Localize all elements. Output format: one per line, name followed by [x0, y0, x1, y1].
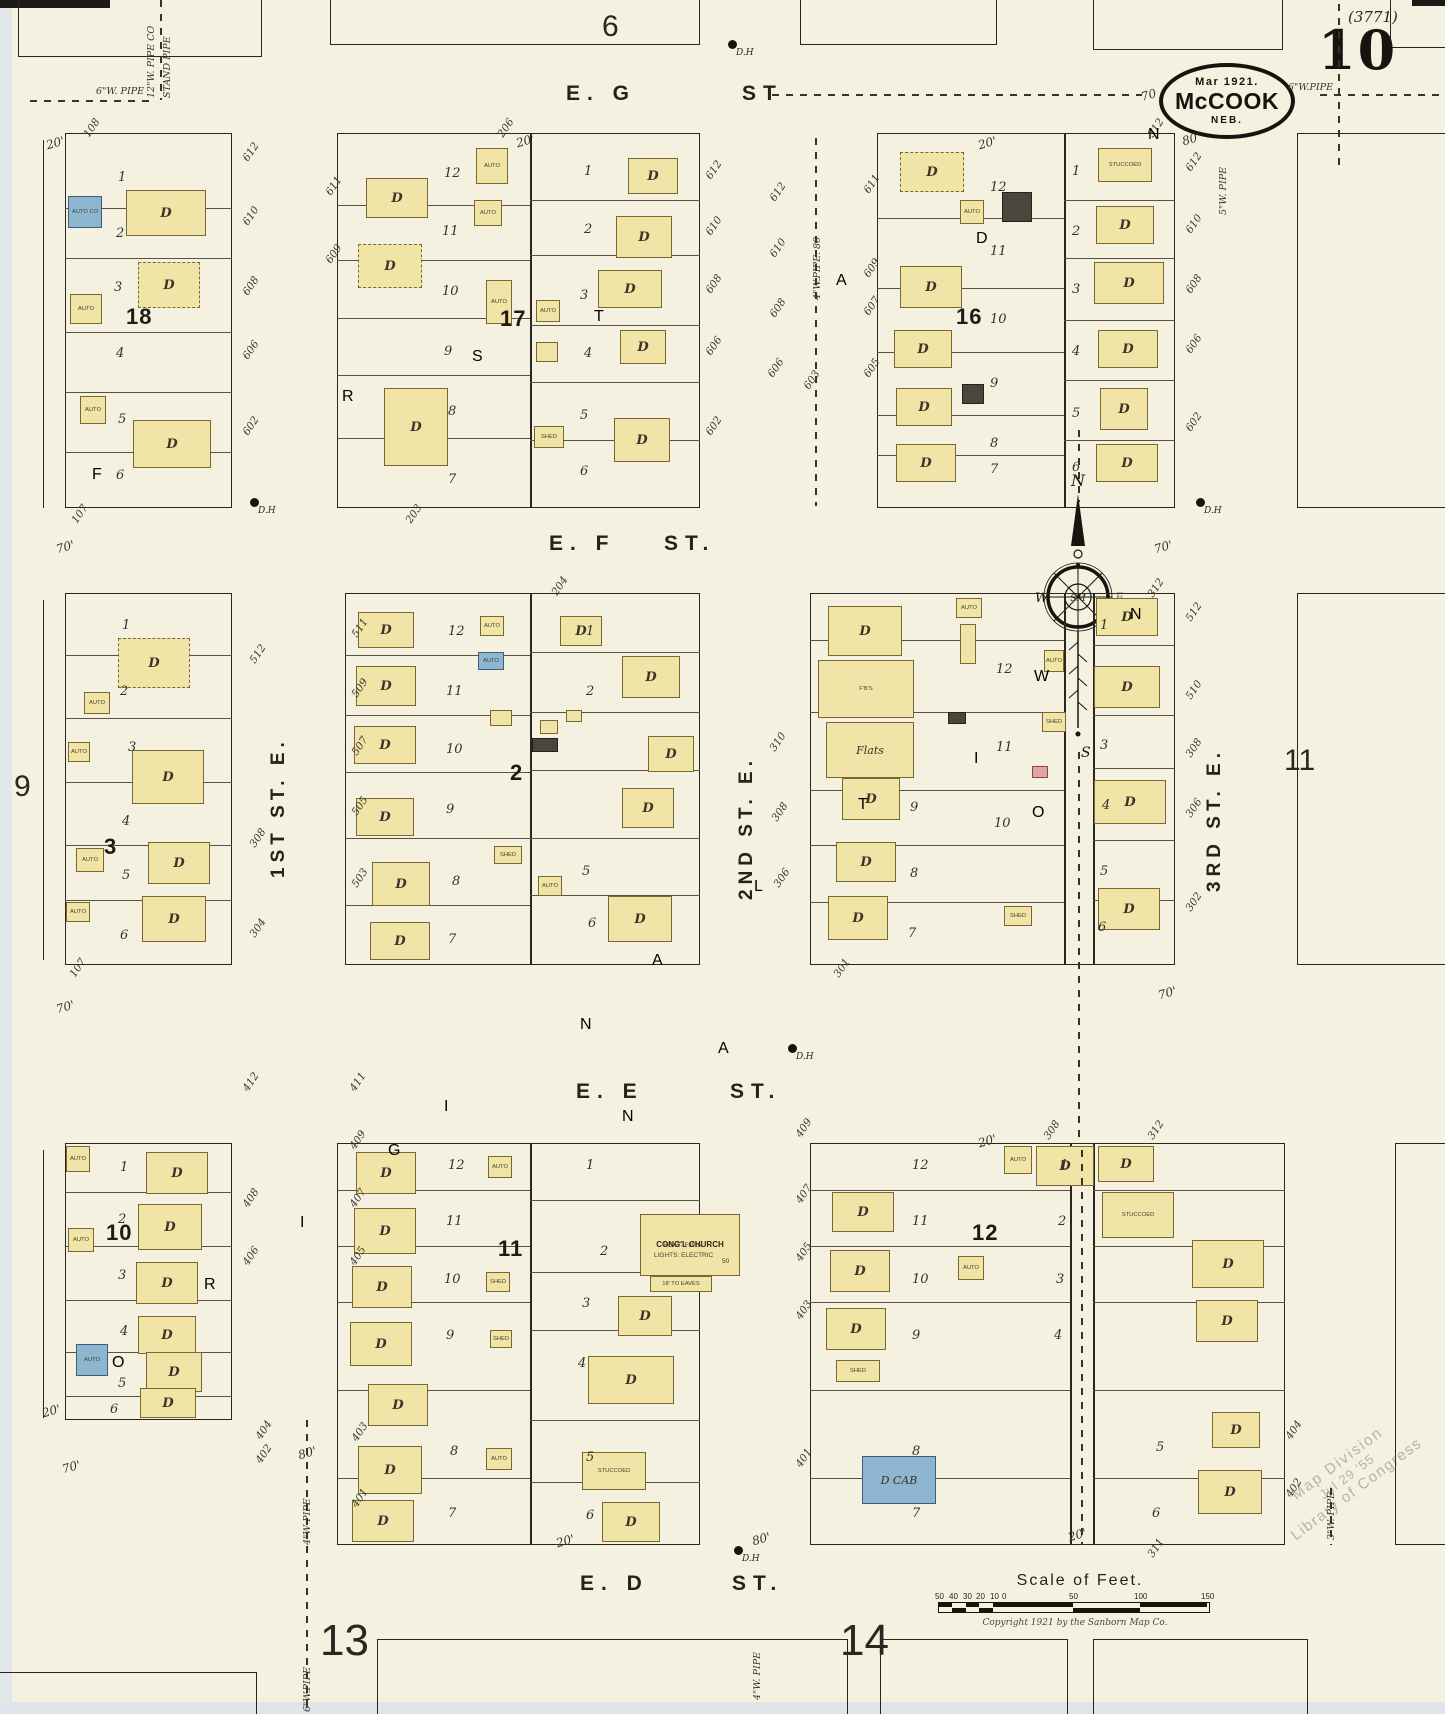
lot-number: 12: [448, 1158, 465, 1173]
plat-letter: A: [836, 272, 847, 290]
building-unlabeled: [1002, 192, 1032, 222]
dimension-label: 70: [1139, 86, 1158, 104]
block-inner-line: [1093, 1143, 1095, 1545]
lot-number: 8: [910, 866, 918, 881]
building-label: D: [625, 1515, 636, 1530]
lot-line: [65, 718, 232, 719]
building-d: D: [1212, 1412, 1260, 1448]
building-unlabeled: [962, 384, 984, 404]
building-d: D: [616, 216, 672, 258]
building-label: D: [384, 259, 395, 274]
building-label: D: [636, 433, 647, 448]
lot-number: 12: [990, 180, 1007, 195]
building-label: SHED: [500, 852, 516, 858]
building-label: D: [642, 801, 653, 816]
building-auto: AUTO: [956, 598, 982, 618]
adjacent-sheet-number: 13: [320, 1616, 369, 1666]
partial-block: [1390, 0, 1445, 48]
lot-number: 7: [990, 462, 998, 477]
building-d: D: [118, 638, 190, 688]
scale-tick: 100: [1134, 1592, 1147, 1601]
building-18-to-eaves: 18' TO EAVES: [650, 1276, 712, 1292]
water-pipe-line: [815, 138, 817, 506]
lot-line: [1093, 645, 1175, 646]
building-d: D: [900, 152, 964, 192]
lot-number: 3: [114, 280, 122, 295]
street-label: E. E: [576, 1080, 644, 1104]
building-label: D: [850, 1322, 861, 1337]
building-label: AUTO: [961, 605, 977, 611]
building-d: D: [358, 244, 422, 288]
house-number: 302: [1183, 890, 1204, 913]
building-shed: SHED: [494, 846, 522, 864]
house-number: 610: [703, 214, 724, 237]
lot-number: 7: [448, 932, 456, 947]
partial-block: [1297, 133, 1445, 508]
lot-line: [810, 1190, 1070, 1191]
building-auto: AUTO: [76, 1344, 108, 1376]
building-auto: AUTO: [68, 742, 90, 762]
lot-number: 2: [120, 684, 128, 699]
building-d: D: [352, 1266, 412, 1308]
block-number: 12: [972, 1220, 998, 1246]
building-d-cab: D CAB: [862, 1456, 936, 1504]
lot-number: 9: [446, 1328, 454, 1343]
building-d: D: [608, 896, 672, 942]
block-inner-line: [530, 593, 532, 965]
building-label: STUCCOED: [1109, 162, 1142, 168]
building-d: D: [1098, 888, 1160, 930]
building-unlabeled: [960, 624, 976, 664]
scale-cell: [1073, 1608, 1140, 1612]
building-stuccoed: STUCCOED: [1102, 1192, 1174, 1238]
plat-letter: I: [974, 750, 978, 768]
building-label: D: [1224, 1485, 1235, 1500]
building-d: D: [1094, 262, 1164, 304]
building-shed: SHED: [1004, 906, 1032, 926]
building-d: D: [384, 388, 448, 466]
building-label: Flats: [856, 744, 884, 757]
building-d: D: [356, 1152, 416, 1194]
lot-line: [530, 382, 700, 383]
lot-number: 6: [116, 468, 124, 483]
block-number: 16: [956, 304, 982, 330]
building-label: AUTO: [84, 1357, 100, 1363]
lot-number: 2: [1058, 1214, 1066, 1229]
plat-letter: N: [580, 1016, 592, 1034]
lot-line: [337, 1390, 530, 1391]
building-label: D: [168, 1365, 179, 1380]
plat-letter: D: [976, 230, 988, 248]
building-label: D: [1123, 276, 1134, 291]
building-d: D: [1100, 388, 1148, 430]
lot-line: [530, 325, 700, 326]
building-label: AUTO: [964, 209, 980, 215]
building-d: D: [560, 616, 602, 646]
building-label: D: [634, 912, 645, 927]
lot-number: 10: [990, 312, 1007, 327]
building-d: D: [1096, 206, 1154, 244]
lot-line: [1093, 840, 1175, 841]
lot-number: 11: [446, 684, 463, 699]
building-label: D: [1121, 680, 1132, 695]
building-label: D: [638, 230, 649, 245]
scale-cell: [993, 1608, 1006, 1612]
plat-letter: L: [754, 878, 763, 896]
building-auto: AUTO: [68, 1228, 94, 1252]
building-auto: AUTO: [960, 200, 984, 224]
adjacent-sheet-number: 6: [602, 10, 619, 44]
building-auto: AUTO: [478, 652, 504, 670]
lot-line: [1064, 258, 1175, 259]
building-label: D: [1124, 795, 1135, 810]
lot-number: 5: [586, 1450, 594, 1465]
pipe-label: 4"W.PIPE. 80: [812, 237, 823, 300]
building-unlabeled: [536, 342, 558, 362]
building-label: D CAB: [881, 1474, 918, 1487]
lot-number: 8: [452, 874, 460, 889]
lot-number: 9: [990, 376, 998, 391]
logo-date: Mar 1921.: [1195, 76, 1259, 88]
building-d: D: [828, 896, 888, 940]
building-label: STUCCOED: [1122, 1212, 1155, 1218]
lot-number: 9: [910, 800, 918, 815]
dimension-label: 80': [750, 1530, 772, 1549]
hydrant-label: D.H: [1204, 506, 1222, 516]
building-label: F'B'S: [859, 686, 873, 692]
block-inner-line: [530, 1143, 532, 1545]
house-number: 409: [793, 1116, 814, 1139]
building-d: D: [900, 266, 962, 308]
building-shed: SHED: [1042, 712, 1066, 732]
lot-number: 1: [1060, 1158, 1068, 1173]
pipe-label: 5"W. PIPE: [1218, 167, 1229, 215]
pipe-label: 4"W. PIPE: [752, 1652, 763, 1700]
building-auto: AUTO: [480, 616, 504, 636]
plat-letter: F: [92, 466, 102, 484]
block-number: 17: [500, 306, 526, 332]
copyright-line: Copyright 1921 by the Sanborn Map Co.: [955, 1618, 1195, 1628]
lot-number: 11: [442, 224, 459, 239]
lot-line: [530, 712, 700, 713]
lot-number: 1: [1072, 164, 1080, 179]
building-d: D: [142, 896, 206, 942]
building-label: SHED: [1010, 913, 1026, 919]
building-label: D: [410, 420, 421, 435]
lot-number: 12: [996, 662, 1013, 677]
building-label: AUTO: [491, 299, 507, 305]
scale-tick: 0: [1002, 1592, 1006, 1601]
lot-number: 12: [444, 166, 461, 181]
building-label: D: [395, 877, 406, 892]
partial-block: [0, 1150, 44, 1418]
building-d: D: [622, 788, 674, 828]
building-auto: AUTO: [76, 848, 104, 872]
pipe-label: STAND PIPE: [162, 36, 173, 98]
house-number: 610: [240, 204, 261, 227]
building-label: AUTO: [78, 306, 94, 312]
scale-cell: [1006, 1603, 1073, 1607]
building-d: D: [132, 750, 204, 804]
building-d: D: [350, 1322, 412, 1366]
block-number: 2: [510, 760, 523, 786]
house-number: 612: [240, 140, 261, 163]
lot-line: [530, 1330, 700, 1331]
plat-letter: A: [718, 1040, 729, 1058]
lot-line: [1064, 380, 1175, 381]
building-auto: AUTO: [84, 692, 110, 714]
lot-number: 1: [584, 164, 592, 179]
building-unlabeled: [532, 738, 558, 752]
building-label: D: [379, 810, 390, 825]
building-stuccoed: STUCCOED: [1098, 148, 1152, 182]
lot-number: 11: [446, 1214, 463, 1229]
lot-number: 8: [912, 1444, 920, 1459]
building-flats: Flats: [826, 722, 914, 778]
building-shed: SHED: [490, 1330, 512, 1348]
house-number: 608: [1183, 272, 1204, 295]
house-number: 606: [1183, 332, 1204, 355]
logo-state: NEB.: [1211, 115, 1243, 126]
building-d: D: [146, 1352, 202, 1392]
building-label: D: [859, 624, 870, 639]
lot-number: 3: [1056, 1272, 1064, 1287]
house-number: 406: [240, 1244, 261, 1267]
building-label: AUTO: [480, 210, 496, 216]
building-label: AUTO: [1010, 1157, 1026, 1163]
pipe-label: 6"W. PIPE: [96, 86, 144, 97]
lot-number: 2: [116, 226, 124, 241]
partial-block: [880, 1639, 1068, 1714]
scale-cell: [966, 1608, 979, 1612]
building-label: D: [625, 1373, 636, 1388]
lot-number: 1: [586, 1158, 594, 1173]
building-note: HEAT- FURN: [664, 1242, 703, 1249]
building-label: D: [171, 1166, 182, 1181]
building-label: D: [391, 191, 402, 206]
building-unlabeled: [566, 710, 582, 722]
building-label: AUTO: [70, 1156, 86, 1162]
block-number: 10: [106, 1220, 132, 1246]
building-label: 18' TO EAVES: [662, 1281, 700, 1287]
lot-number: 4: [1072, 344, 1080, 359]
building-auto: AUTO: [1004, 1146, 1032, 1174]
publisher-logo: Mar 1921. McCOOK NEB.: [1159, 63, 1295, 139]
lot-number: 4: [1054, 1328, 1062, 1343]
lot-number: 6: [580, 464, 588, 479]
hydrant-label: D.H: [796, 1052, 814, 1062]
building-unlabeled: [490, 710, 512, 726]
building-unlabeled: [948, 712, 966, 724]
house-number: 304: [247, 916, 268, 939]
lot-number: 10: [912, 1272, 929, 1287]
building-d: D: [1098, 1146, 1154, 1182]
building-d: D: [836, 842, 896, 882]
building-label: D: [1123, 902, 1134, 917]
water-pipe-line: [1338, 4, 1340, 170]
street-label: ST.: [730, 1080, 781, 1104]
dimension-label: 70': [1156, 984, 1178, 1003]
lot-line: [530, 652, 700, 653]
plat-letter: R: [342, 388, 354, 406]
building-label: D: [665, 747, 676, 762]
building-d: D: [370, 922, 430, 960]
building-label: AUTO: [70, 909, 86, 915]
scale-cell: [1073, 1603, 1140, 1607]
lot-line: [1093, 1390, 1285, 1391]
building-label: D: [394, 934, 405, 949]
plat-letter: N: [1130, 606, 1142, 624]
scale-bar-row: [939, 1603, 1209, 1607]
lot-number: 5: [1100, 864, 1108, 879]
building-label: D: [162, 770, 173, 785]
partial-block: [1395, 1143, 1445, 1545]
building-d: D: [896, 388, 952, 426]
building-auto: AUTO: [66, 902, 90, 922]
building-auto: AUTO: [488, 1156, 512, 1178]
scale-title: Scale of Feet.: [935, 1572, 1225, 1590]
building-label: D: [380, 623, 391, 638]
building-label: D: [161, 1328, 172, 1343]
building-label: D: [166, 437, 177, 452]
building-shed: SHED: [836, 1360, 880, 1382]
sanborn-map-sheet: Mar 1921. McCOOK NEB. N SM W E: [0, 0, 1445, 1714]
building-label: D: [173, 856, 184, 871]
building-label: D: [925, 280, 936, 295]
building-label: D: [384, 1463, 395, 1478]
scale-cell: [966, 1603, 979, 1607]
scale-bar-row: [939, 1608, 1209, 1612]
lot-line: [530, 200, 700, 201]
building-d: D: [140, 1388, 196, 1418]
building-d: D: [358, 1446, 422, 1494]
lot-number: 2: [1072, 224, 1080, 239]
hydrant-label: D.H: [736, 48, 754, 58]
house-number: 306: [771, 866, 792, 889]
building-label: D: [1121, 456, 1132, 471]
building-auto: AUTO: [66, 1146, 90, 1172]
lot-number: 5: [122, 868, 130, 883]
lot-line: [1064, 200, 1175, 201]
serial-number: (3771): [1348, 8, 1398, 26]
lot-number: 2: [600, 1244, 608, 1259]
lot-number: 5: [1156, 1440, 1164, 1455]
building-label: D: [857, 1205, 868, 1220]
house-number: 603: [801, 368, 822, 391]
lot-line: [65, 258, 232, 259]
block-number: 3: [104, 834, 117, 860]
lot-line: [1093, 1190, 1285, 1191]
lot-number: 5: [118, 1376, 126, 1391]
building-label: D: [1122, 342, 1133, 357]
lot-line: [810, 1302, 1070, 1303]
building-label: D: [163, 278, 174, 293]
house-number: 404: [1283, 1418, 1304, 1441]
water-pipe-line: [1078, 430, 1080, 502]
lot-line: [345, 838, 530, 839]
sheet-number: 10: [1318, 18, 1397, 82]
lot-number: 6: [586, 1508, 594, 1523]
building-unlabeled: [540, 720, 558, 734]
building-label: D: [380, 679, 391, 694]
building-label: D: [1222, 1257, 1233, 1272]
building-d: D: [828, 606, 902, 656]
building-label: SHED: [493, 1336, 509, 1342]
dimension-label: 70': [1152, 538, 1174, 557]
building-d: D: [138, 262, 200, 308]
partial-block: [0, 1672, 257, 1714]
plat-letter: T: [858, 796, 868, 814]
lot-line: [810, 1246, 1070, 1247]
lot-number: 4: [122, 814, 130, 829]
plat-letter: N: [622, 1108, 634, 1126]
logo-city: McCOOK: [1175, 88, 1279, 115]
house-number: 606: [703, 334, 724, 357]
scale-bar-graphic: [938, 1602, 1210, 1613]
partial-block: [18, 0, 262, 57]
house-number: 612: [1183, 150, 1204, 173]
building-label: D: [645, 670, 656, 685]
street-label-vertical: 3RD ST. E.: [1204, 748, 1226, 892]
scale-tick: 20: [976, 1592, 985, 1601]
lot-number: 8: [450, 1444, 458, 1459]
building-auto: AUTO: [476, 148, 508, 184]
lot-number: 4: [578, 1356, 586, 1371]
plat-letter: S: [472, 348, 483, 366]
building-label: D: [379, 738, 390, 753]
building-shed: SHED: [486, 1272, 510, 1292]
lot-number: 1: [118, 170, 126, 185]
partial-block: [0, 140, 44, 508]
lot-number: 12: [912, 1158, 929, 1173]
lot-number: 4: [584, 346, 592, 361]
lot-number: 10: [442, 284, 459, 299]
building-label: D: [379, 1224, 390, 1239]
water-pipe-line: [160, 0, 162, 100]
building-label: SHED: [1046, 719, 1062, 725]
lot-number: 11: [996, 740, 1013, 755]
lot-number: 6: [1098, 920, 1106, 935]
adjacent-sheet-number: 11: [1284, 744, 1315, 778]
house-number: 404: [253, 1418, 274, 1441]
scale-tick: 50: [1069, 1592, 1078, 1601]
house-number: 310: [767, 730, 788, 753]
building-d: D: [1192, 1240, 1264, 1288]
building-d: D: [133, 420, 211, 468]
lot-number: 10: [444, 1272, 461, 1287]
building-label: AUTO: [540, 308, 556, 314]
building-label: D: [624, 282, 635, 297]
lot-line: [810, 1478, 1070, 1479]
lot-number: 7: [908, 926, 916, 941]
building-label: D: [1120, 1157, 1131, 1172]
street-label: ST.: [732, 1572, 783, 1596]
building-auto: AUTO: [958, 1256, 984, 1280]
block-inner-line: [1070, 1143, 1072, 1545]
building-label: D: [1119, 218, 1130, 233]
scale-cell: [939, 1608, 952, 1612]
street-label-vertical: 1ST ST. E.: [268, 737, 290, 878]
building-label: D: [852, 911, 863, 926]
water-pipe-line: [1081, 1150, 1083, 1545]
building-note: 50: [722, 1258, 729, 1265]
lot-number: 1: [122, 618, 130, 633]
partial-block: [330, 0, 700, 45]
lot-number: 3: [582, 1296, 590, 1311]
house-number: 312: [1145, 1118, 1166, 1141]
hydrant-label: D.H: [258, 506, 276, 516]
lot-number: 12: [448, 624, 465, 639]
